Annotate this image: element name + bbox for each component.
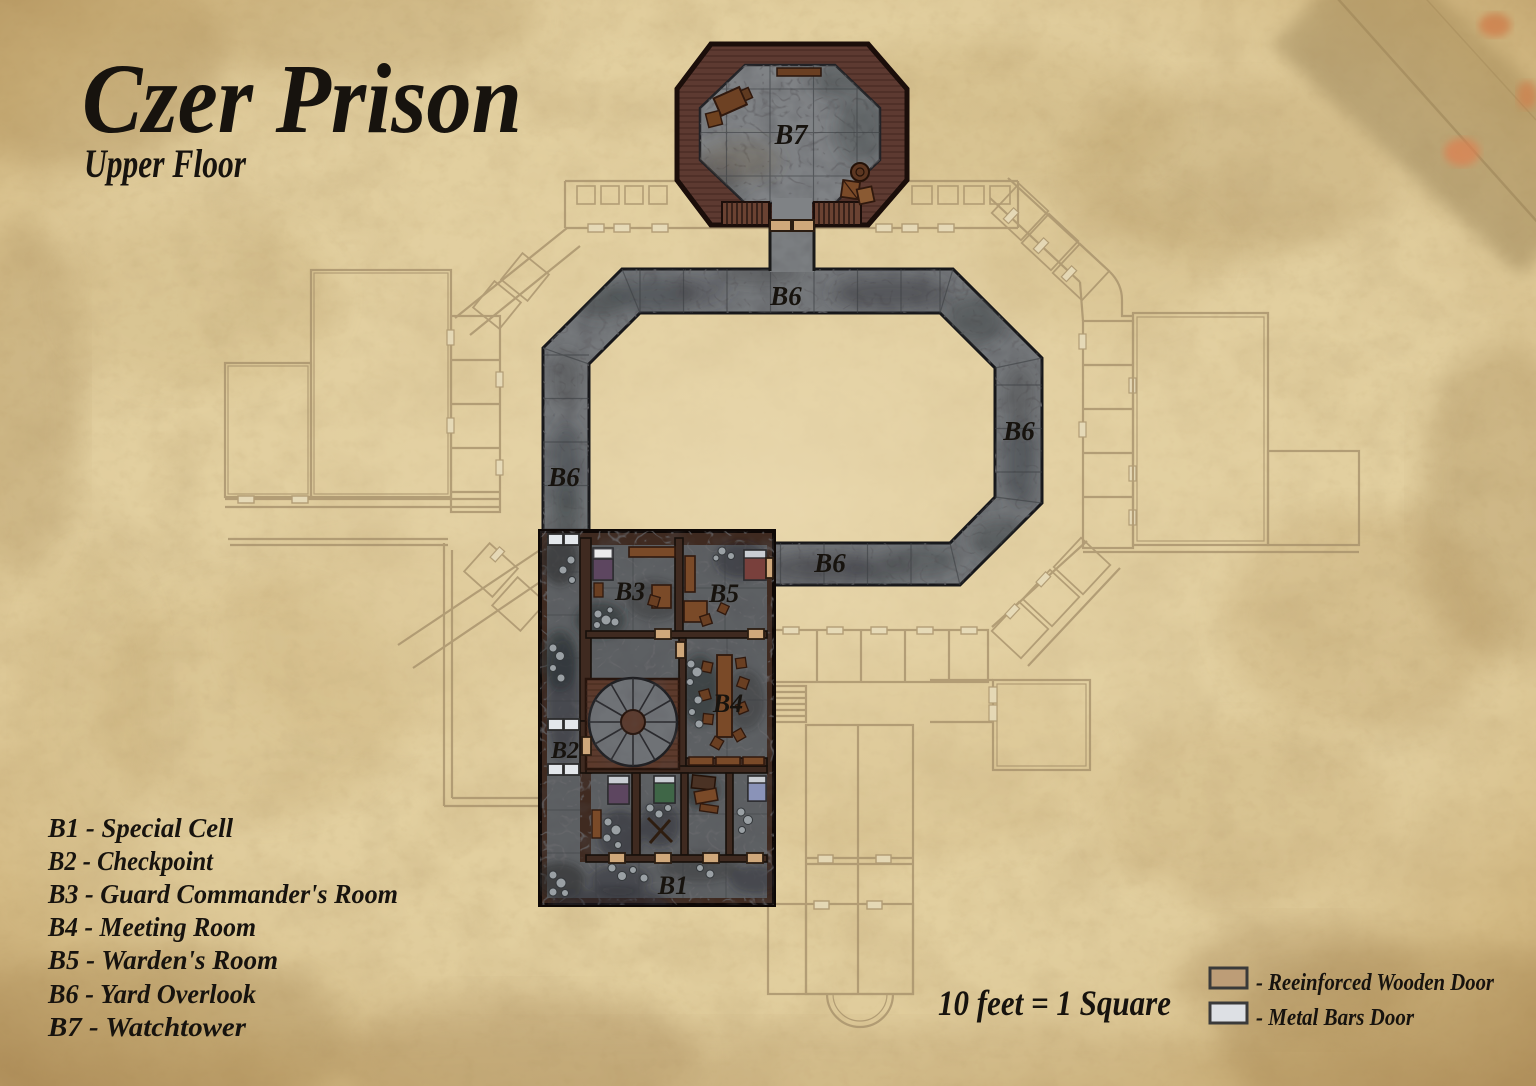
svg-text:B6 - Yard Overlook: B6 - Yard Overlook (47, 979, 256, 1009)
svg-text:B6: B6 (1002, 416, 1035, 446)
svg-text:Czer Prison: Czer Prison (82, 43, 522, 154)
svg-text:B7 - Watchtower: B7 - Watchtower (47, 1012, 247, 1042)
svg-text:B1: B1 (657, 871, 688, 900)
svg-text:B1 - Special Cell: B1 - Special Cell (47, 813, 233, 843)
svg-text:10 feet = 1 Square: 10 feet = 1 Square (938, 983, 1171, 1023)
svg-text:B4 - Meeting Room: B4 - Meeting Room (47, 912, 256, 942)
svg-text:B7: B7 (774, 120, 809, 151)
svg-text:B3: B3 (614, 577, 645, 606)
svg-text:B5 - Warden's Room: B5 - Warden's Room (47, 945, 278, 975)
svg-text:- Metal Bars Door: - Metal Bars Door (1256, 1005, 1415, 1031)
svg-text:Upper Floor: Upper Floor (84, 141, 246, 186)
svg-text:- Reeinforced Wooden Door: - Reeinforced Wooden Door (1256, 970, 1495, 996)
svg-text:B6: B6 (547, 462, 580, 492)
svg-text:B5: B5 (708, 579, 739, 608)
svg-text:B6: B6 (813, 548, 846, 578)
svg-text:B3 - Guard Commander's Room: B3 - Guard Commander's Room (47, 879, 398, 909)
svg-text:B2: B2 (550, 738, 579, 764)
svg-text:B6: B6 (769, 281, 802, 311)
svg-text:B4: B4 (712, 689, 743, 718)
svg-text:B2 - Checkpoint: B2 - Checkpoint (47, 846, 214, 876)
